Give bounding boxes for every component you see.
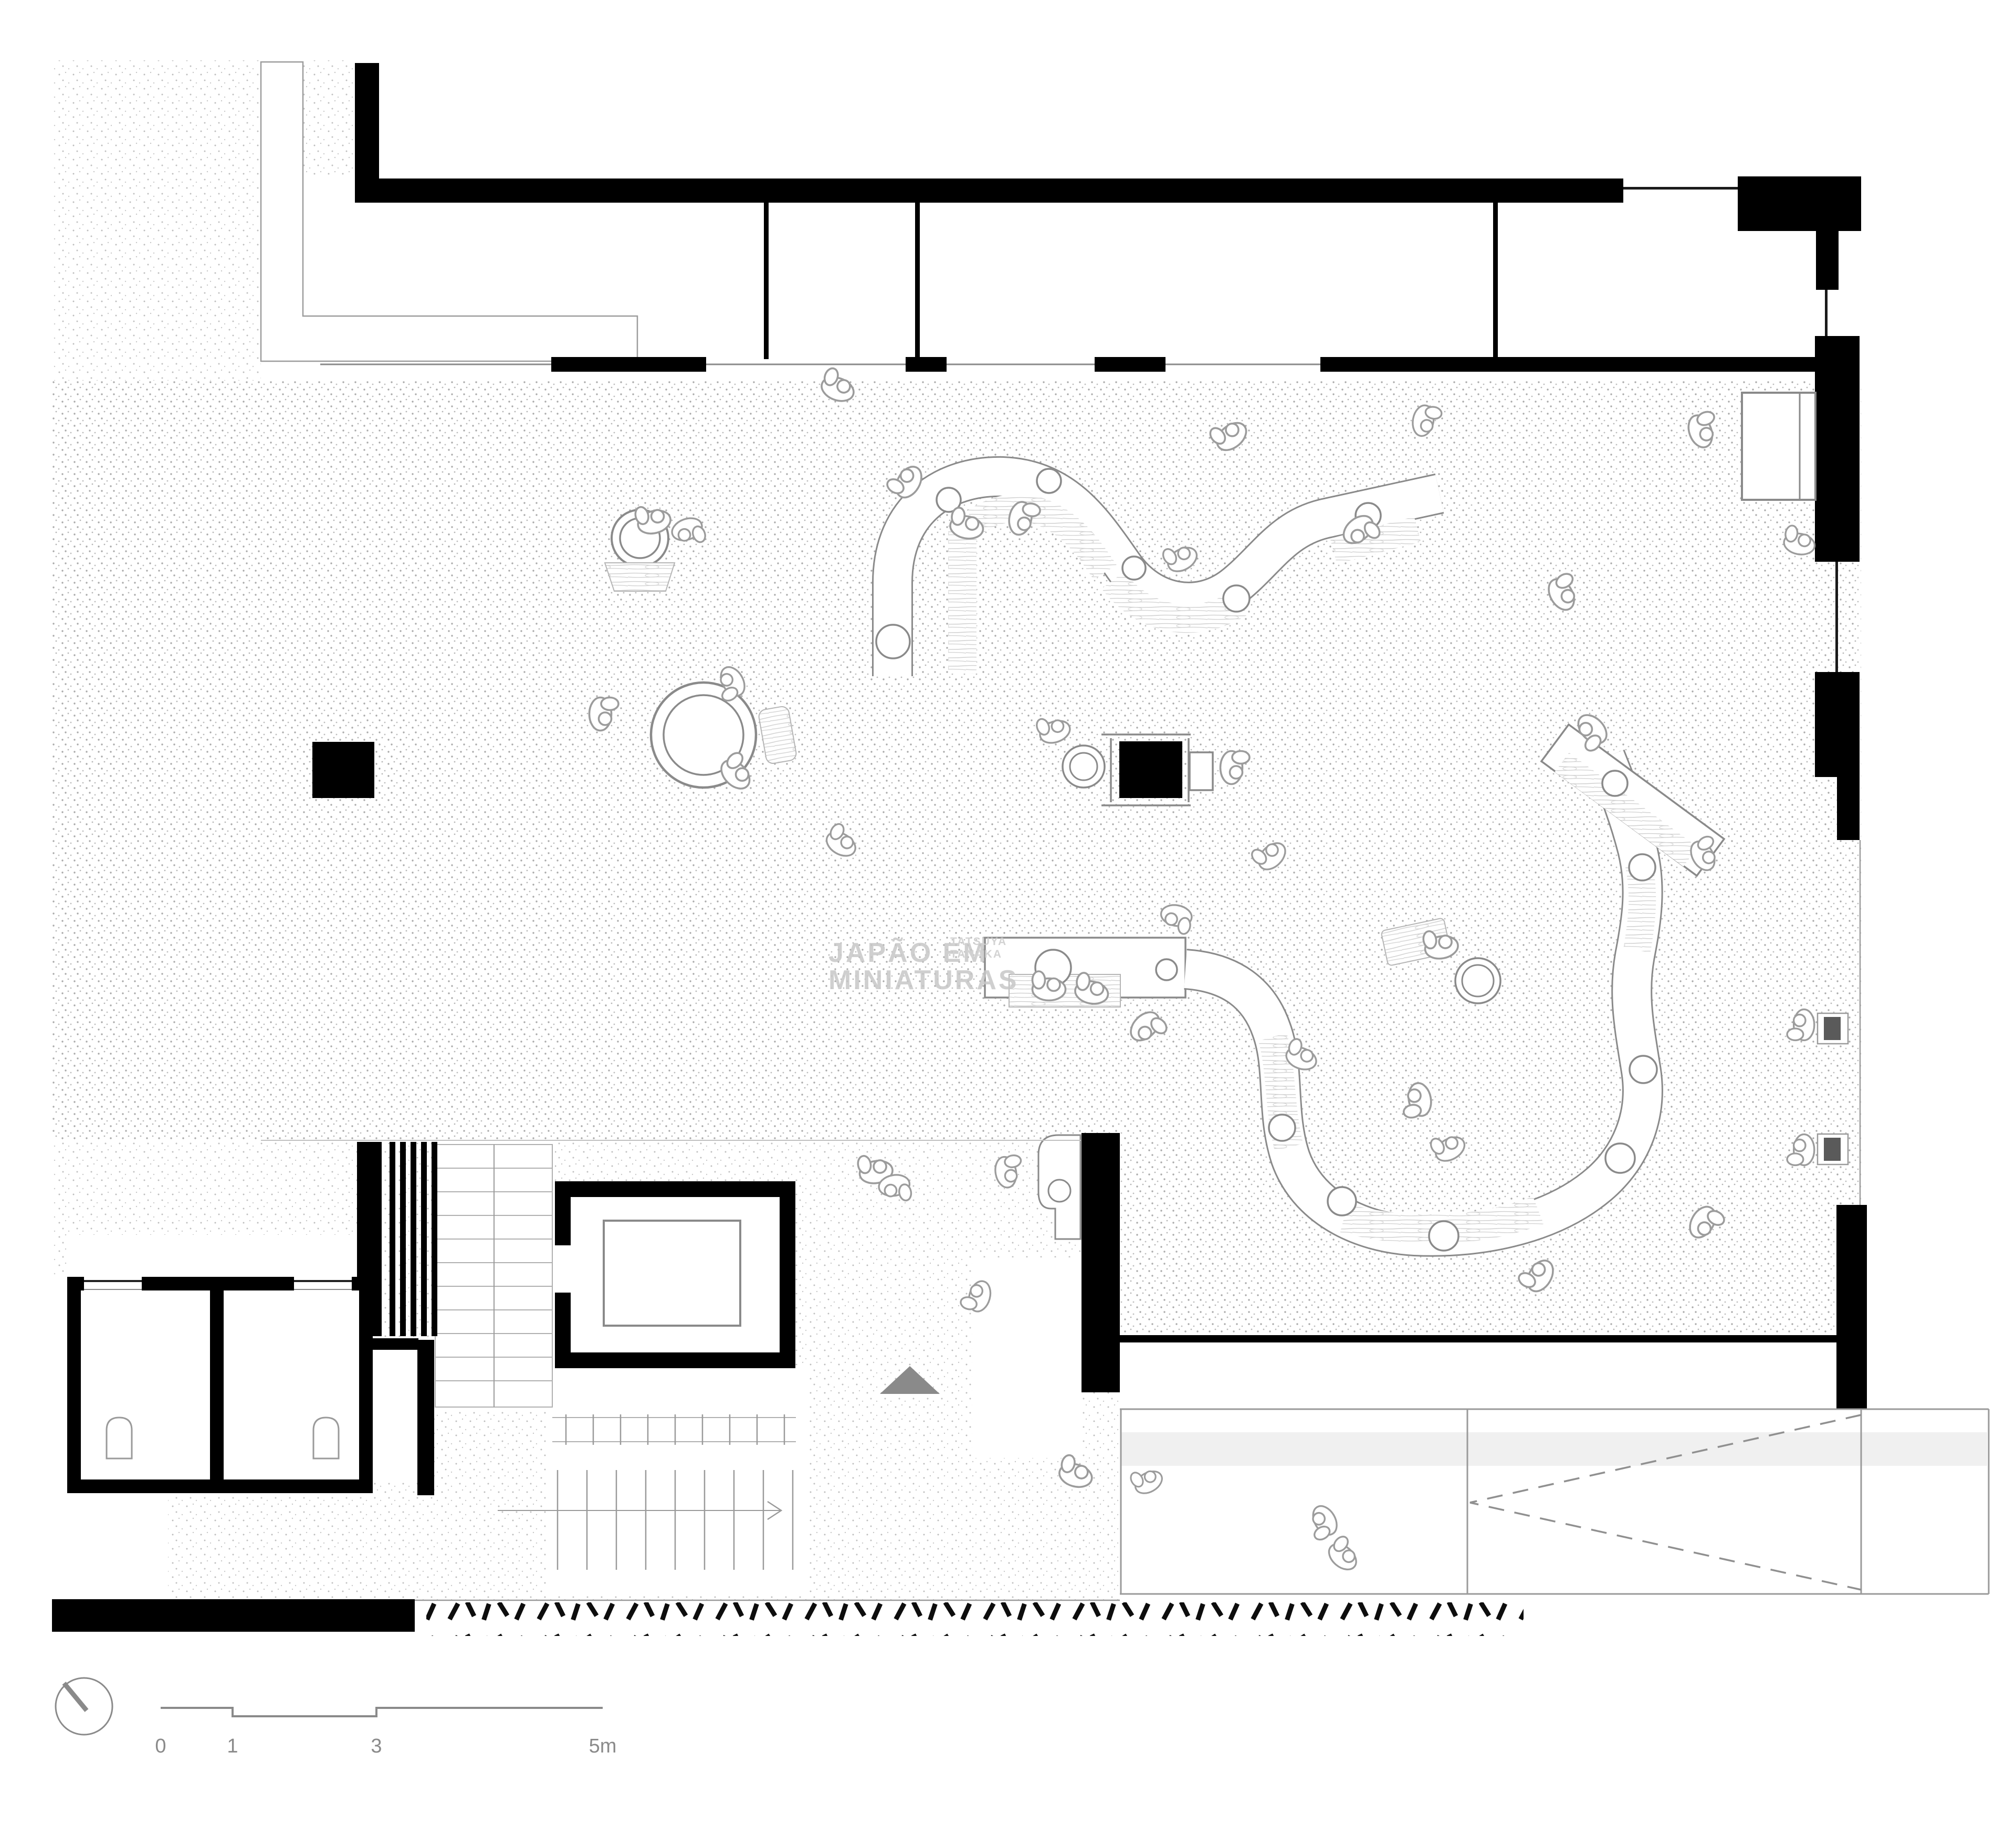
bench-hole bbox=[1048, 1180, 1070, 1202]
partition-2 bbox=[915, 203, 920, 359]
kiosk-desk bbox=[1190, 752, 1213, 790]
wall-pier bbox=[1081, 1133, 1120, 1392]
kiosk-black-block bbox=[1119, 741, 1182, 798]
vegetation-hatch-band bbox=[426, 1602, 1524, 1636]
wall-corner-topright bbox=[1738, 176, 1861, 231]
south-wall-band bbox=[52, 1599, 415, 1632]
wall-display-2 bbox=[1818, 1134, 1848, 1164]
wall-top-band bbox=[355, 179, 1623, 203]
north-indicator bbox=[56, 1678, 112, 1735]
scale-tick-0: 0 bbox=[155, 1735, 166, 1757]
partition-3 bbox=[1493, 203, 1498, 359]
watermark-credit1: TATSUYA bbox=[950, 936, 1007, 948]
entrance-vestibule bbox=[1120, 1409, 1990, 1594]
inner-wall-seg-4 bbox=[1320, 357, 1816, 372]
partition-1 bbox=[764, 203, 769, 359]
floor-plan-canvas: JAPÃO EM MINIATURAS TATSUYA TANAKA 0 1 3… bbox=[0, 0, 2016, 1826]
door-opening-1 bbox=[84, 1275, 142, 1293]
door-opening-2 bbox=[294, 1275, 352, 1293]
watermark-credit2: TANAKA bbox=[950, 948, 1002, 960]
toilet-icon bbox=[313, 1418, 339, 1458]
main-staircase bbox=[435, 1145, 552, 1407]
scale-tick-1: 1 bbox=[227, 1735, 238, 1757]
entrance-mat bbox=[1121, 1432, 1987, 1466]
display-case bbox=[1742, 393, 1815, 500]
watermark-line2: MINIATURAS bbox=[828, 965, 1019, 995]
elevator-cab bbox=[604, 1221, 740, 1326]
scale-tick-3: 3 bbox=[371, 1735, 382, 1757]
elevator bbox=[555, 1181, 795, 1368]
kiosk-stool bbox=[1063, 746, 1105, 788]
wall-display-1 bbox=[1818, 1013, 1848, 1044]
inner-wall-seg-1 bbox=[551, 357, 706, 372]
annex-wall-right bbox=[417, 1340, 434, 1495]
scale-bar: 0 1 3 5m bbox=[155, 1708, 616, 1757]
inner-wall-seg-2 bbox=[906, 357, 947, 372]
black-column bbox=[312, 742, 374, 798]
wood-stool-trapezoid bbox=[605, 563, 675, 591]
wall-bar-topleft bbox=[355, 63, 379, 182]
wall-gallery-south bbox=[1120, 1335, 1839, 1342]
annex-wall-top bbox=[373, 1338, 418, 1350]
watermark: JAPÃO EM MINIATURAS TATSUYA TANAKA bbox=[828, 936, 1019, 995]
round-table-c bbox=[1455, 958, 1500, 1003]
toilet-icon bbox=[107, 1418, 132, 1458]
inner-wall-seg-3 bbox=[1095, 357, 1165, 372]
scale-tick-5: 5m bbox=[589, 1735, 617, 1757]
